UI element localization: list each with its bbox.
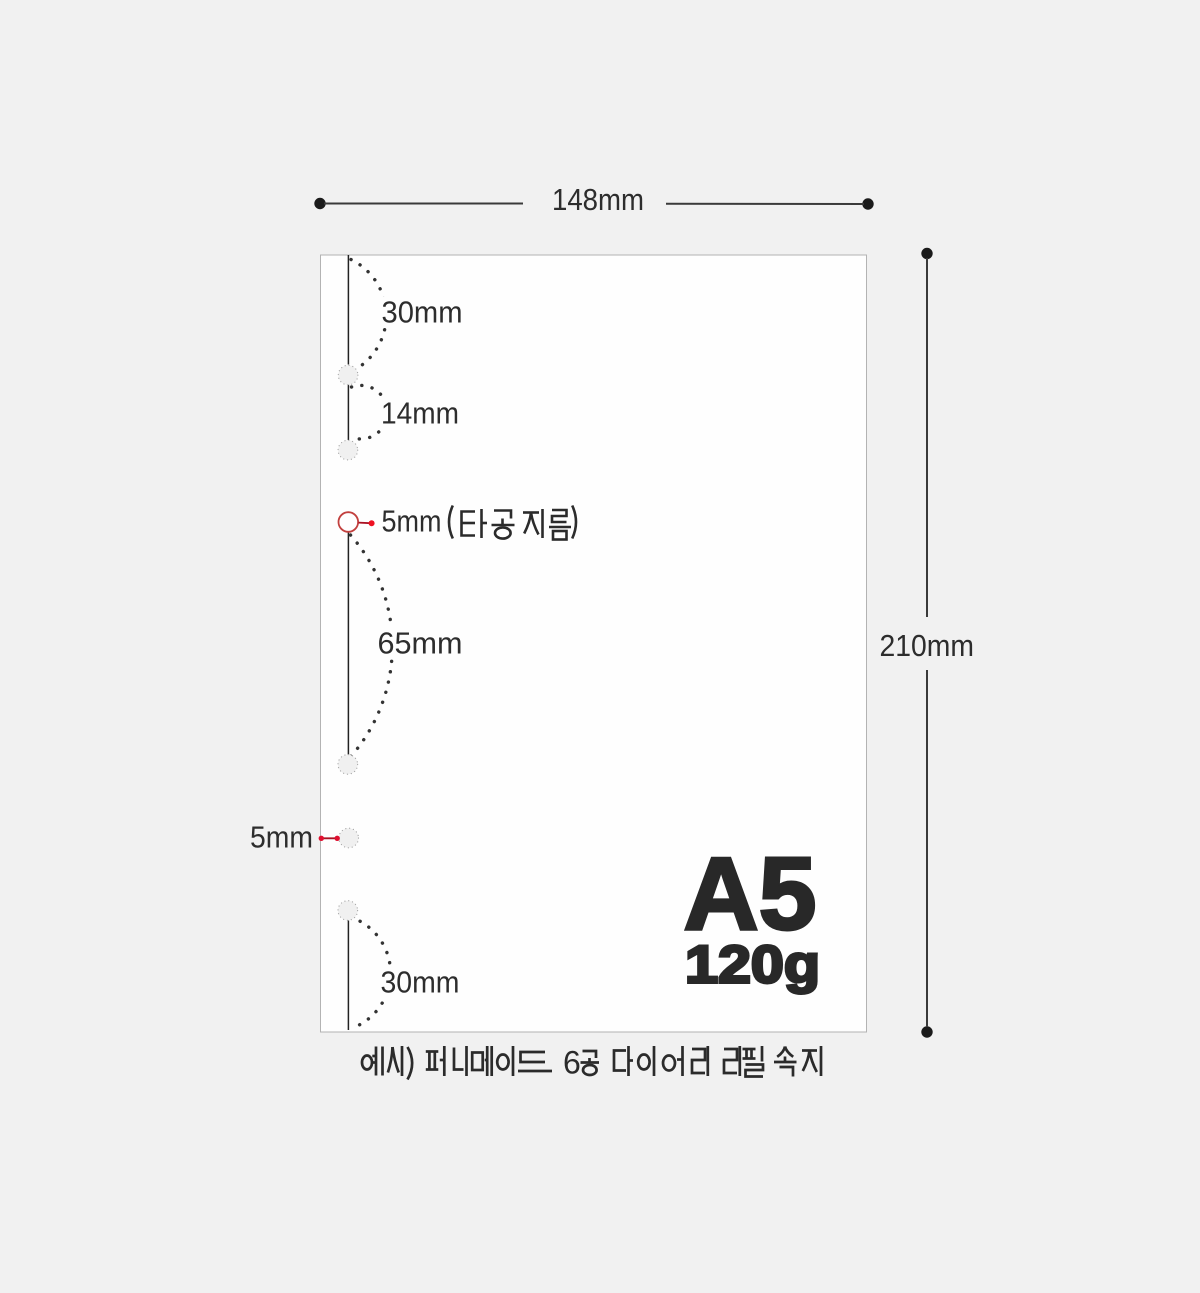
svg-text:120g: 120g: [685, 936, 820, 995]
svg-text:210mm: 210mm: [880, 628, 975, 663]
svg-text:65mm: 65mm: [378, 626, 463, 661]
svg-text:5mm: 5mm: [250, 820, 313, 855]
svg-text:5mm: 5mm: [382, 504, 442, 539]
svg-text:148mm: 148mm: [552, 182, 644, 217]
svg-text:A5: A5: [684, 836, 817, 951]
svg-text:6: 6: [563, 1045, 581, 1081]
svg-text:14mm: 14mm: [381, 396, 459, 431]
svg-text:30mm: 30mm: [381, 965, 460, 1000]
svg-text:30mm: 30mm: [382, 295, 463, 330]
